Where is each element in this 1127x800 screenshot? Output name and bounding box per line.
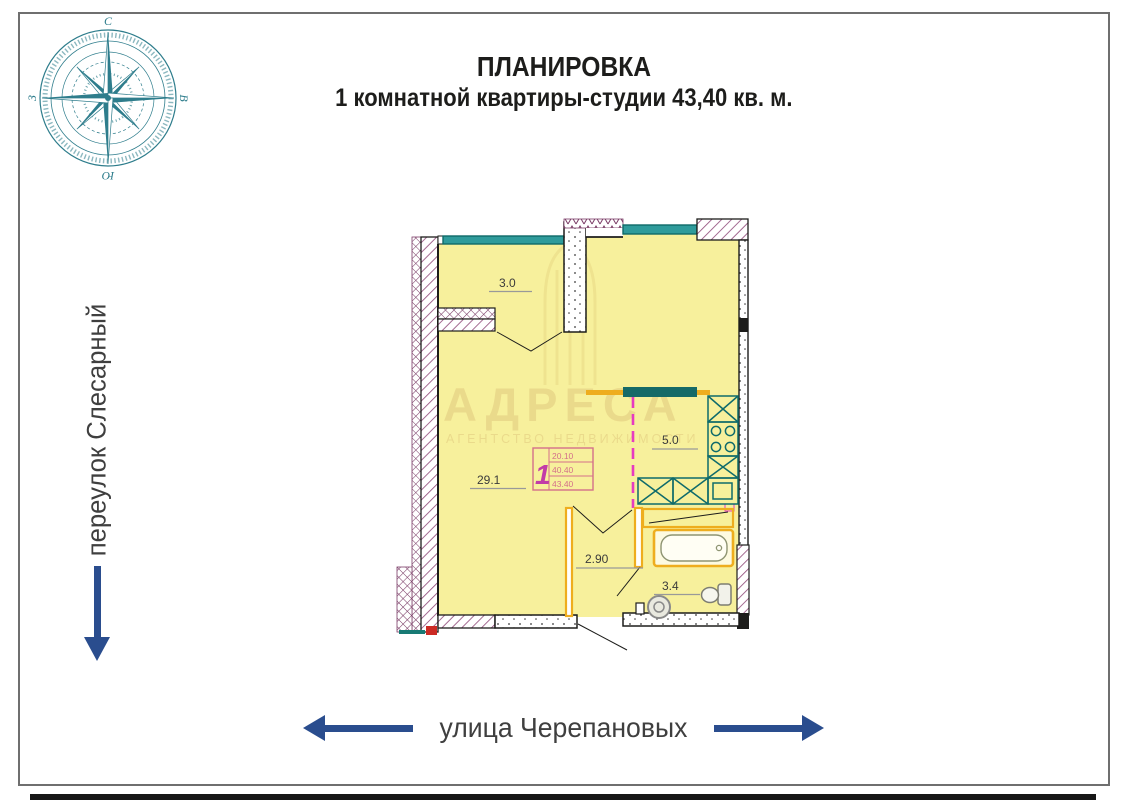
title-line2: 1 комнатной квартиры-студии 43,40 кв. м. (335, 83, 792, 114)
bathroom-area-label: 3.4 (662, 579, 679, 593)
toilet-bowl (702, 588, 719, 603)
right-arrow-icon (714, 715, 824, 741)
kitchen-area-label: 5.0 (662, 433, 679, 447)
street-left-label: переулок Слесарный (82, 304, 113, 557)
street-bottom-label: улица Черепановых (440, 712, 688, 744)
down-arrow-shaft (94, 566, 101, 638)
floor-plan: АДРЕСА АГЕНТСТВО НЕДВИЖИМОСТИ (394, 202, 756, 654)
living-area-label: 29.1 (477, 473, 501, 487)
left-arrow-icon (303, 715, 413, 741)
street-bottom: улица Черепановых (0, 712, 1127, 744)
toilet-tank (718, 584, 731, 605)
compass-south-label: Ю (101, 169, 115, 183)
bathroom-wall (635, 508, 642, 567)
watermark-brand: АДРЕСА (443, 378, 684, 431)
page: С В Ю З ПЛАНИРОВКА 1 комнатной квартиры-… (0, 0, 1127, 800)
page-title: ПЛАНИРОВКА 1 комнатной квартиры-студии 4… (0, 52, 1127, 114)
window-band-main (623, 225, 697, 234)
hallway-area-label: 2.90 (585, 552, 609, 566)
corner-teal-mark (399, 630, 425, 634)
loggia-area-label: 3.0 (499, 276, 516, 290)
wall-left (397, 237, 438, 632)
bottom-divider (30, 794, 1096, 800)
stamp-row1: 20.10 (552, 451, 574, 461)
entrance-door (578, 624, 627, 650)
down-arrow-icon (84, 637, 110, 661)
stamp-row3: 43.40 (552, 479, 574, 489)
corner-red-mark (426, 626, 437, 635)
stamp-row2: 40.40 (552, 465, 574, 475)
washing-machine (648, 596, 670, 618)
watermark-tagline: АГЕНТСТВО НЕДВИЖИМОСТИ (446, 432, 699, 446)
window-band-loggia (443, 236, 564, 244)
hallway-wall (566, 508, 572, 616)
wall-right (737, 240, 749, 629)
title-line1: ПЛАНИРОВКА (476, 52, 650, 83)
compass-north-label: С (104, 14, 113, 28)
stamp-apartment-number: 1 (535, 459, 551, 490)
